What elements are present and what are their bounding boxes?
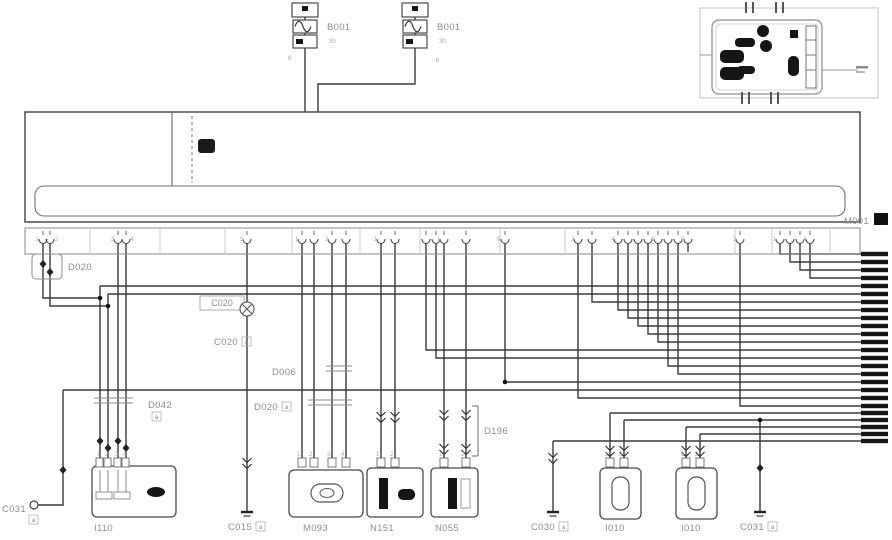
component-blob xyxy=(398,489,415,500)
bus-end-tick xyxy=(861,388,888,392)
terminal-diamond xyxy=(123,444,130,452)
fuse-assembly-a: B001 xyxy=(292,3,350,48)
bus-end-tick xyxy=(861,300,888,304)
wiring-diagram: B001 B001 M001 xyxy=(0,0,892,540)
component-n055: N055 xyxy=(431,468,478,534)
component-left-label: I110 xyxy=(94,523,113,534)
pin-symbol xyxy=(122,239,130,244)
pin-blob xyxy=(788,56,799,76)
component-m093: M093 xyxy=(289,470,363,534)
internal-relay-icon xyxy=(198,139,215,153)
component-pin-box xyxy=(462,458,470,467)
component-outline xyxy=(600,468,641,519)
component-outline xyxy=(676,468,717,519)
component-pin-box xyxy=(620,458,628,467)
d042-label: D042 xyxy=(148,400,172,411)
component-pin-box xyxy=(377,458,385,467)
main-unit-label: M001 xyxy=(844,216,869,227)
pin-number: 2 xyxy=(55,237,59,243)
pin-number: 1 xyxy=(376,452,380,458)
terminal-diamond xyxy=(60,466,67,474)
bus-wire xyxy=(810,252,862,278)
component-pin-box xyxy=(682,458,690,467)
pin-number: 1 xyxy=(297,452,301,458)
bus-wire xyxy=(740,252,862,406)
bus-end-tick xyxy=(861,332,888,336)
d020a-suffix: a xyxy=(285,404,289,411)
bus-end-tick xyxy=(861,432,888,436)
component-pin-box xyxy=(122,458,129,467)
bus-end-tick xyxy=(861,356,888,360)
bus-end-tick xyxy=(861,396,888,400)
i010-a-label: I010 xyxy=(605,523,625,534)
n151-label: N151 xyxy=(370,523,394,534)
inset-leader-mark xyxy=(856,71,865,73)
d006-label: D006 xyxy=(272,367,296,378)
pin-blob xyxy=(757,25,769,37)
bus-end-tick xyxy=(861,380,888,384)
bus-wire xyxy=(426,252,862,350)
component-pin-box xyxy=(391,458,399,467)
fuse-element-icon xyxy=(295,21,311,32)
pin-number: 4 xyxy=(130,237,134,243)
pin-number: 2 xyxy=(390,452,394,458)
pin-blob xyxy=(720,50,744,63)
c020-box-label: C020 xyxy=(211,298,233,308)
pin-symbol xyxy=(634,239,642,244)
main-unit-outline xyxy=(25,112,860,222)
pin-symbol xyxy=(776,239,784,244)
component-pin-box xyxy=(440,458,448,467)
fuse-contact xyxy=(412,6,418,11)
fuse-assembly-b: B001 xyxy=(402,3,460,48)
pin-symbol xyxy=(377,239,385,244)
bus-wire xyxy=(638,252,862,326)
pin-row-outline xyxy=(806,26,816,88)
component-pin-box xyxy=(114,458,121,467)
fuse-a-label: B001 xyxy=(327,22,350,33)
d196-label: D196 xyxy=(484,426,508,437)
bus-end-tick xyxy=(861,439,888,443)
pin-symbol xyxy=(684,239,692,244)
pin-number: 3 xyxy=(327,452,331,458)
c031-left-wire xyxy=(38,390,63,505)
terminal-diamond xyxy=(757,464,764,472)
d020a-label: D020 xyxy=(254,402,278,413)
bus-end-tick xyxy=(861,252,888,256)
bus-end-tick xyxy=(861,276,888,280)
connector-locator-inset xyxy=(700,2,878,104)
pin-symbol xyxy=(614,239,622,244)
pin-blob xyxy=(735,38,755,47)
c031-right-suffix: a xyxy=(771,524,775,531)
pin-symbol xyxy=(310,239,318,244)
terminal-diamond xyxy=(115,437,122,445)
bus-wire xyxy=(658,252,862,342)
component-pin-box xyxy=(696,458,704,467)
component-n151: N151 xyxy=(367,468,423,534)
fuse-contact xyxy=(302,6,308,11)
bus-end-tick xyxy=(861,268,888,272)
fuse-b-label: B001 xyxy=(437,22,460,33)
terminal-diamond xyxy=(47,268,54,276)
bus-end-tick xyxy=(861,292,888,296)
main-unit-label-marker xyxy=(874,213,888,225)
bus-wire xyxy=(668,252,862,366)
bus-end-tick xyxy=(861,324,888,328)
m093-label: M093 xyxy=(303,523,328,534)
bus-end-tick xyxy=(861,340,888,344)
pin-symbol xyxy=(654,239,662,244)
component-pin-box xyxy=(298,458,306,467)
fuse-contact xyxy=(296,39,303,44)
junction-dot xyxy=(503,380,508,385)
bus-end-tick xyxy=(861,418,888,422)
c020a-suffix: a xyxy=(245,339,249,346)
pin-symbol xyxy=(664,239,672,244)
ground-connector-icon xyxy=(30,501,38,509)
component-outline xyxy=(289,470,363,517)
pin-blob xyxy=(790,30,798,38)
c031-right-label: C031 xyxy=(740,522,764,533)
component-pin-box xyxy=(96,458,103,467)
pin-number: 30 xyxy=(439,39,446,45)
fuse-element-icon xyxy=(405,21,421,32)
bus-end-tick xyxy=(861,284,888,288)
bus-wire xyxy=(505,252,862,382)
component-pin-box xyxy=(104,458,111,467)
wiring-diagram-page: B001 B001 M001 xyxy=(0,0,892,540)
pin-symbol xyxy=(114,239,122,244)
d020-label: D020 xyxy=(68,262,92,273)
bus-end-tick xyxy=(861,308,888,312)
pin-number: 30 xyxy=(329,39,336,45)
bus-end-tick xyxy=(861,411,888,415)
pin-symbol xyxy=(440,239,448,244)
c031-left-suffix: a xyxy=(32,517,36,524)
d020-connector-outline xyxy=(32,254,62,279)
pin-symbol xyxy=(298,239,306,244)
component-bar xyxy=(379,478,388,509)
component-pin-box xyxy=(310,458,318,467)
i010-b-label: I010 xyxy=(681,523,701,534)
n055-label: N055 xyxy=(435,523,459,534)
pin-symbol xyxy=(806,239,814,244)
terminal-diamond xyxy=(97,437,104,445)
fuse-contact xyxy=(406,39,413,44)
component-i010-a: I010 xyxy=(600,468,641,534)
c015-label: C015 xyxy=(228,522,252,533)
bus-end-tick xyxy=(861,316,888,320)
junction-dot xyxy=(98,296,103,301)
component-bar xyxy=(448,478,457,509)
pin-symbol xyxy=(342,239,350,244)
pin-blob xyxy=(760,40,772,52)
bus-wire xyxy=(648,252,862,334)
bus-end-tick xyxy=(861,348,888,352)
bottom-components: I110 M093 N151 N055 I010 xyxy=(92,466,717,534)
c031-left-label: C031 xyxy=(2,504,26,515)
pin-symbol xyxy=(574,239,582,244)
pin-symbol xyxy=(786,239,794,244)
component-pin-box xyxy=(342,458,350,467)
d042-suffix: a xyxy=(155,414,159,421)
bus-end-tick xyxy=(861,372,888,376)
pin-symbol xyxy=(462,239,470,244)
main-unit-box: M001 xyxy=(25,112,888,227)
bus-end-tick xyxy=(861,425,888,429)
terminal-diamond xyxy=(105,444,112,452)
bus-end-tick xyxy=(861,260,888,264)
component-blob xyxy=(147,487,165,497)
terminal-diamond xyxy=(40,260,47,268)
component-i010-b: I010 xyxy=(676,468,717,534)
pin-number: 2 xyxy=(309,452,313,458)
pin-number: 4 xyxy=(341,452,345,458)
c030-label: C030 xyxy=(531,522,555,533)
junction-dot xyxy=(106,304,111,309)
bus-end-tick xyxy=(861,364,888,368)
c020a-label: C020 xyxy=(214,337,238,348)
pin-blob xyxy=(737,66,755,74)
pin-symbol xyxy=(501,239,509,244)
component-left-unit: I110 xyxy=(92,466,176,534)
inset-leader-mark xyxy=(856,66,868,69)
component-pin-box xyxy=(328,458,336,467)
pin-symbol xyxy=(391,239,399,244)
pin-symbol xyxy=(736,239,744,244)
pin-number: 6 xyxy=(288,56,292,62)
junction-dot xyxy=(758,418,763,423)
pin-symbol xyxy=(328,239,336,244)
pin-symbol xyxy=(624,239,632,244)
d020-wire xyxy=(43,252,100,298)
pin-symbol xyxy=(588,239,596,244)
bus-end-tick xyxy=(861,404,888,408)
pin-symbol xyxy=(422,239,430,244)
c030-suffix: a xyxy=(562,524,566,531)
component-pin-box xyxy=(606,458,614,467)
pin-number: 6 xyxy=(436,58,440,64)
c015-suffix: a xyxy=(259,524,263,531)
bus-wire xyxy=(578,252,862,398)
pin-symbol xyxy=(243,239,251,244)
